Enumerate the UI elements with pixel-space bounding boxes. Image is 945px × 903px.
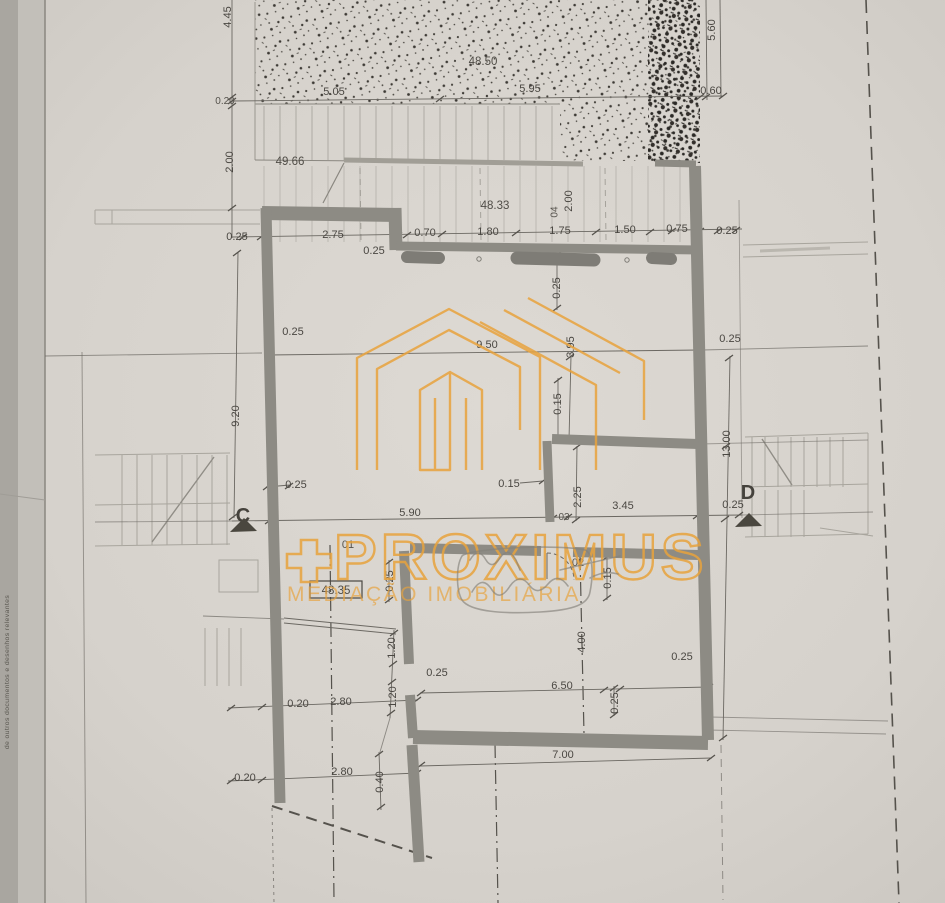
dim-label: 0.25 <box>282 326 303 338</box>
dim-label: 1.80 <box>477 226 498 238</box>
dim-label: 0.25 <box>716 225 737 237</box>
window-symbol <box>407 257 439 258</box>
dim-label: 2.80 <box>330 696 351 708</box>
area-label: 48.33 <box>481 200 510 212</box>
dim-label: 0.25 <box>426 667 447 679</box>
dim-label: 4.45 <box>222 6 234 27</box>
sheet-side-text: de outros documentos e desenhos relevant… <box>4 595 11 750</box>
dim-label: 1.20 <box>387 686 399 707</box>
dim-label: 2.75 <box>322 229 343 241</box>
dim-label: 0.25 <box>722 499 743 511</box>
dim-label: 9.20 <box>230 405 242 426</box>
dim-label: 5.60 <box>706 19 718 40</box>
dim-label: 0.20 <box>287 698 308 710</box>
area-label: 48.50 <box>469 56 498 68</box>
window-symbol <box>652 258 671 259</box>
dim-label: 6.50 <box>551 680 572 692</box>
dim-label: 0.20 <box>215 96 235 107</box>
dim-label: 0.20 <box>234 772 255 784</box>
photographed-floor-plan: C D 4.45 48.50 5.60 5.05 5.95 0.60 0.20 … <box>0 0 945 903</box>
dim-label: 5.05 <box>323 86 344 98</box>
dim-label: 7.00 <box>552 749 573 761</box>
dim-label: 0.25 <box>551 277 563 298</box>
dim-label: 5.95 <box>519 83 540 95</box>
dim-label: 0.75 <box>666 223 687 235</box>
area-label: 49.66 <box>276 156 305 168</box>
dim-label: 0.25 <box>719 333 740 345</box>
dim-label: 13.00 <box>721 430 733 458</box>
dim-label: 2.80 <box>331 766 352 778</box>
dim-label: 1.75 <box>549 225 570 237</box>
dim-label: 0.25 <box>226 231 247 243</box>
window-symbol <box>517 258 594 260</box>
floor-plan-drawing: C D 4.45 48.50 5.60 5.05 5.95 0.60 0.20 … <box>0 0 945 903</box>
dim-label: 0.60 <box>700 85 721 97</box>
dim-label: 0.15 <box>498 478 519 490</box>
dim-label: 0.40 <box>374 771 386 792</box>
terrain-stipple <box>255 0 700 242</box>
dim-label: 0.25 <box>363 245 384 257</box>
dim-label: 4.00 <box>576 631 588 652</box>
dim-label: 0.70 <box>414 227 435 239</box>
dim-label: 2.00 <box>563 190 575 211</box>
dim-label: 5.90 <box>399 507 420 519</box>
dim-label: 04 <box>550 206 561 218</box>
dim-label: 0.25 <box>609 692 621 713</box>
dim-label: 2.25 <box>572 486 584 507</box>
watermark-subtitle: MEDIAÇÃO IMOBILIÁRIA <box>287 582 581 606</box>
dim-label: 1.50 <box>614 224 635 236</box>
dim-label: 0.25 <box>671 651 692 663</box>
dim-label: 0.15 <box>552 393 564 414</box>
dim-label: 2.00 <box>224 151 236 172</box>
dim-label: 0.25 <box>285 479 306 491</box>
dim-label: 3.45 <box>612 500 633 512</box>
dim-label: 1.20 <box>386 637 398 658</box>
